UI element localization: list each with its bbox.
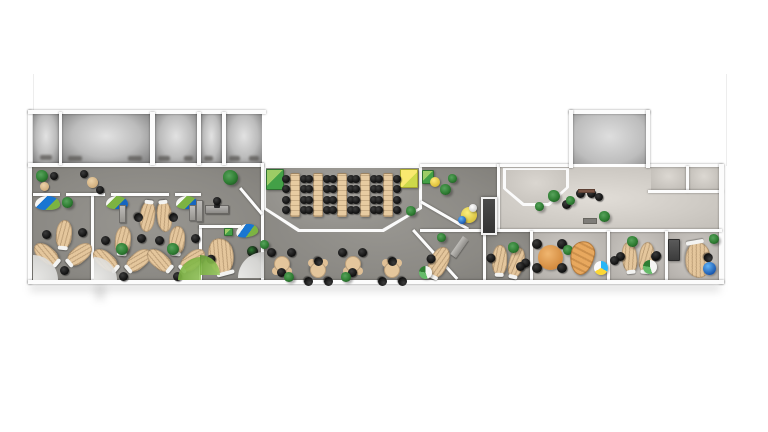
office-chair	[516, 262, 525, 271]
plan-drop-shadow	[95, 284, 105, 300]
wall-segment	[197, 112, 201, 165]
office-chair	[398, 277, 407, 286]
wall-segment	[646, 110, 650, 168]
office-chair	[101, 236, 110, 245]
office-chair	[305, 206, 313, 214]
ball-chair	[419, 266, 432, 279]
office-chair	[324, 277, 333, 286]
office-chair	[80, 170, 88, 178]
potted-plant	[36, 170, 48, 182]
office-chair	[329, 185, 337, 193]
tlong-desk-part	[290, 173, 300, 217]
wall-segment	[28, 110, 32, 284]
room-fixture	[204, 156, 213, 161]
wall-segment	[607, 231, 610, 282]
wall-segment	[497, 164, 500, 232]
ball-chair	[430, 177, 440, 187]
wall-segment	[222, 112, 226, 165]
tlong-desk-part	[360, 173, 370, 217]
room-fixture	[249, 156, 259, 161]
office-chair	[375, 206, 383, 214]
office-chair	[267, 248, 276, 257]
ttable-group	[374, 173, 402, 217]
cabinet	[400, 169, 418, 188]
cafe-group	[303, 256, 333, 286]
office-chair	[50, 172, 58, 180]
room-fixture	[40, 155, 52, 160]
upper-floor-outline	[33, 74, 34, 112]
wall-segment	[420, 229, 722, 232]
office-chair	[532, 239, 542, 249]
room-fixture	[229, 156, 240, 161]
reception-desk	[205, 205, 229, 214]
office-chair	[393, 175, 401, 183]
office-chair	[282, 185, 290, 193]
wall-segment	[150, 112, 155, 165]
top-room-right	[573, 114, 646, 164]
office-chair	[352, 196, 360, 204]
potted-plant	[627, 236, 638, 247]
wall-segment	[648, 190, 723, 193]
office-chair	[304, 277, 313, 286]
office-chair	[352, 206, 360, 214]
office-chair	[134, 213, 143, 222]
potted-plant	[440, 184, 451, 195]
wall-segment	[569, 110, 573, 168]
office-chair	[652, 251, 661, 260]
sideboard	[119, 205, 126, 223]
office-chair	[375, 175, 383, 183]
top-small-room-2	[689, 167, 719, 190]
office-chair	[329, 206, 337, 214]
wall-segment	[420, 164, 500, 167]
potted-plant	[437, 233, 446, 242]
potted-plant	[406, 206, 416, 216]
potted-plant	[116, 243, 128, 255]
room-fixture	[68, 156, 82, 161]
wall-segment	[59, 112, 62, 165]
potted-plant	[341, 272, 351, 282]
office-chair	[358, 248, 367, 257]
office-chair	[78, 228, 87, 237]
room-fixture	[128, 156, 142, 161]
potted-plant	[284, 272, 294, 282]
office-chair	[282, 175, 290, 183]
office-chair	[378, 277, 387, 286]
office-chair	[329, 196, 337, 204]
wall-segment	[28, 110, 266, 114]
cafe-group	[377, 256, 407, 286]
office-chair	[155, 236, 164, 245]
office-chair	[375, 185, 383, 193]
office-chair	[60, 266, 69, 275]
tlong-desk-part	[313, 173, 323, 217]
ball-chair	[469, 204, 477, 212]
potted-plant	[709, 234, 719, 244]
potted-plant	[62, 197, 73, 208]
upper-floor-outline	[726, 74, 727, 166]
room-fixture	[184, 156, 193, 161]
wall-segment	[686, 166, 689, 192]
top-small-room-1	[651, 167, 686, 190]
potted-plant	[508, 242, 519, 253]
ball-chair	[594, 261, 608, 275]
wall-segment	[500, 164, 572, 167]
elevator-shaft	[481, 197, 497, 235]
cabinet	[668, 239, 680, 261]
office-chair	[305, 185, 313, 193]
office-chair	[329, 175, 337, 183]
wall-segment	[569, 110, 650, 114]
office-chair	[557, 263, 567, 273]
office-chair	[119, 272, 128, 281]
wall-segment	[199, 225, 241, 228]
office-chair	[338, 248, 347, 257]
potted-plant	[260, 240, 269, 249]
office-chair	[96, 186, 104, 194]
potted-plant	[566, 196, 575, 205]
ball-chair	[703, 262, 716, 275]
room-fixture	[158, 156, 170, 161]
office-chair	[352, 185, 360, 193]
potted-plant	[599, 211, 610, 222]
office-chair	[393, 185, 401, 193]
office-chair	[287, 248, 296, 257]
office-chair	[191, 234, 200, 243]
sideboard	[189, 205, 196, 221]
office-chair	[213, 197, 221, 205]
office-chair	[42, 230, 51, 239]
desk-desk-part	[55, 219, 73, 248]
wall-segment	[646, 164, 723, 167]
office-chair	[282, 196, 290, 204]
office-chair	[169, 213, 178, 222]
office-chair	[314, 257, 323, 266]
round-stool	[40, 182, 49, 191]
wall-segment	[28, 163, 264, 167]
office-chair	[305, 175, 313, 183]
tlong-desk-part	[383, 173, 393, 217]
office-chair	[595, 193, 603, 201]
door-mat	[578, 189, 595, 193]
sideboard	[196, 200, 203, 222]
office-floor-plan	[0, 0, 768, 432]
potted-plant	[535, 202, 544, 211]
office-chair	[393, 196, 401, 204]
wall-segment	[719, 164, 724, 284]
tlong-desk-part	[337, 173, 347, 217]
potted-plant	[448, 174, 457, 183]
ball-chair	[458, 216, 466, 224]
office-chair	[282, 206, 290, 214]
potted-plant	[223, 170, 238, 185]
office-chair	[393, 206, 401, 214]
potted-plant	[167, 243, 179, 255]
office-chair	[610, 256, 619, 265]
office-chair	[532, 263, 542, 273]
potted-plant	[548, 190, 560, 202]
lounge-seat	[35, 196, 60, 210]
ball-chair	[643, 260, 657, 274]
office-chair	[388, 257, 397, 266]
office-chair	[352, 175, 360, 183]
office-chair	[137, 234, 146, 243]
door-mat	[583, 218, 597, 224]
office-chair	[375, 196, 383, 204]
office-chair	[305, 196, 313, 204]
